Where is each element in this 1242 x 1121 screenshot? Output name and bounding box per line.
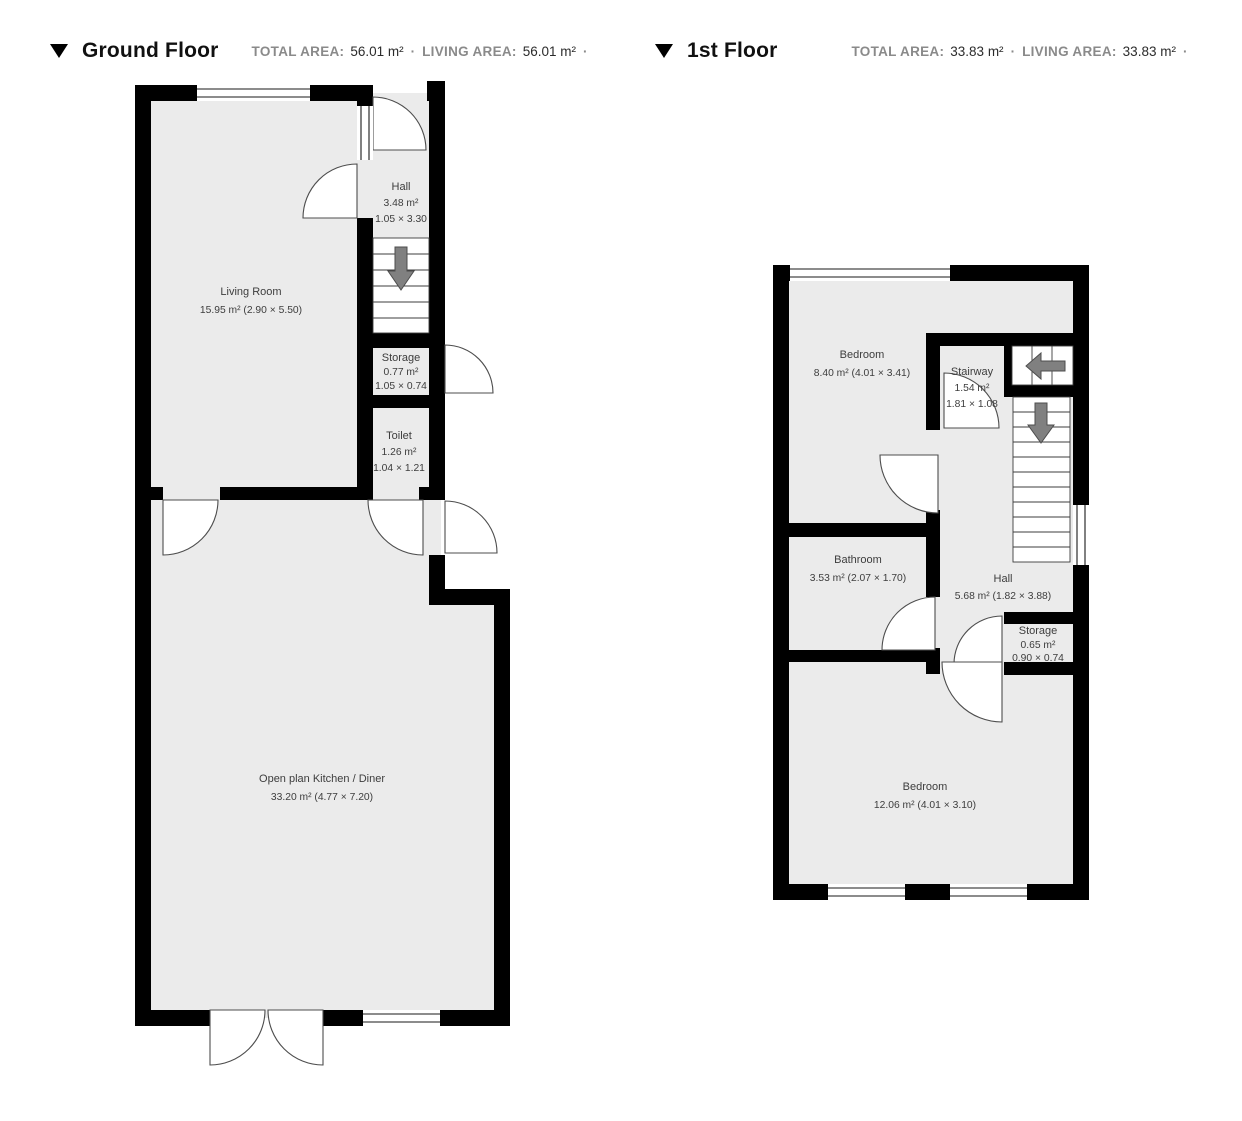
first-floor-header: 1st Floor TOTAL AREA: 33.83 m² · LIVING … <box>655 36 1194 66</box>
window <box>828 884 905 900</box>
window <box>950 884 1027 900</box>
separator-dot: · <box>411 44 416 59</box>
room-label-kitchen: Open plan Kitchen / Diner <box>259 773 385 785</box>
storage-door-arc <box>445 345 493 393</box>
living-area-value: 33.83 m² <box>1123 44 1176 59</box>
separator-dot: · <box>1011 44 1016 59</box>
floor-title: 1st Floor <box>687 39 777 63</box>
room-area-stairway: 1.54 m² <box>955 383 990 394</box>
floor-stats: TOTAL AREA: 33.83 m² · LIVING AREA: 33.8… <box>851 44 1194 59</box>
room-label-storage: Storage <box>382 352 421 364</box>
room-dims-toilet: 1.04 × 1.21 <box>373 463 425 474</box>
collapse-triangle-icon[interactable] <box>50 44 68 58</box>
room-dims-hall: 1.05 × 3.30 <box>375 214 427 225</box>
living-area-value: 56.01 m² <box>523 44 576 59</box>
room-dims-kitchen: 33.20 m² (4.77 × 7.20) <box>271 792 373 803</box>
room-dims-storage: 0.90 × 0.74 <box>1012 653 1064 664</box>
total-area-label: TOTAL AREA: <box>851 44 944 59</box>
room-area-toilet: 1.26 m² <box>382 447 417 458</box>
collapse-triangle-icon[interactable] <box>655 44 673 58</box>
floor-area <box>143 93 502 1018</box>
floor-stats: TOTAL AREA: 56.01 m² · LIVING AREA: 56.0… <box>252 44 595 59</box>
room-dims-bedroom2: 12.06 m² (4.01 × 3.10) <box>874 800 976 811</box>
room-dims-storage: 1.05 × 0.74 <box>375 381 427 392</box>
staircase <box>373 238 429 333</box>
room-dims-living-room: 15.95 m² (2.90 × 5.50) <box>200 305 302 316</box>
staircase <box>1012 346 1073 562</box>
first-floor-plan: Bedroom 8.40 m² (4.01 × 3.41) Stairway 1… <box>758 255 1108 925</box>
living-area-label: LIVING AREA: <box>422 44 517 59</box>
patio-door-left-arc <box>210 1010 265 1065</box>
room-area-hall: 3.48 m² <box>384 198 419 209</box>
room-dims-hall: 5.68 m² (1.82 × 3.88) <box>955 591 1051 602</box>
ground-floor-plan: Hall 3.48 m² 1.05 × 3.30 Living Room 15.… <box>125 75 535 1080</box>
total-area-value: 56.01 m² <box>350 44 403 59</box>
side-door-arc <box>445 501 497 553</box>
room-dims-bathroom: 3.53 m² (2.07 × 1.70) <box>810 573 906 584</box>
room-label-hall: Hall <box>994 573 1013 585</box>
window <box>363 1010 440 1026</box>
room-area-storage: 0.65 m² <box>1021 640 1056 651</box>
window <box>197 85 310 101</box>
room-dims-bedroom1: 8.40 m² (4.01 × 3.41) <box>814 368 910 379</box>
total-area-label: TOTAL AREA: <box>252 44 345 59</box>
room-label-living-room: Living Room <box>220 286 281 298</box>
floor-title: Ground Floor <box>82 39 219 63</box>
window <box>357 106 373 160</box>
room-label-bedroom2: Bedroom <box>903 781 948 793</box>
separator-dot: · <box>583 44 588 59</box>
room-label-storage: Storage <box>1019 625 1058 637</box>
total-area-value: 33.83 m² <box>950 44 1003 59</box>
room-area-storage: 0.77 m² <box>384 367 419 378</box>
room-label-bedroom1: Bedroom <box>840 349 885 361</box>
ground-floor-header: Ground Floor TOTAL AREA: 56.01 m² · LIVI… <box>50 36 595 66</box>
window <box>790 265 950 281</box>
room-label-stairway: Stairway <box>951 366 994 378</box>
separator-dot: · <box>1183 44 1188 59</box>
living-area-label: LIVING AREA: <box>1022 44 1117 59</box>
room-label-toilet: Toilet <box>386 430 412 442</box>
room-label-hall: Hall <box>392 181 411 193</box>
room-label-bathroom: Bathroom <box>834 554 882 566</box>
patio-door-right-arc <box>268 1010 323 1065</box>
window <box>1073 505 1089 565</box>
room-dims-stairway: 1.81 × 1.08 <box>946 399 998 410</box>
